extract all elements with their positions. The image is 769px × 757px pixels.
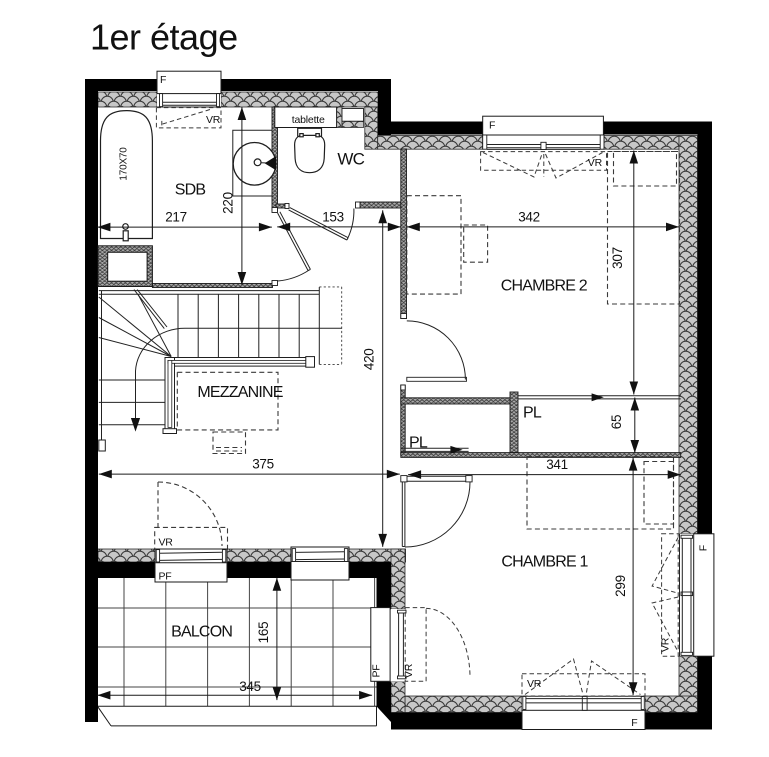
svg-text:F: F bbox=[631, 717, 637, 729]
svg-text:375: 375 bbox=[252, 457, 274, 472]
svg-text:345: 345 bbox=[239, 679, 261, 694]
svg-text:BALCON: BALCON bbox=[171, 623, 232, 640]
svg-text:65: 65 bbox=[609, 415, 624, 429]
svg-text:341: 341 bbox=[546, 457, 568, 472]
svg-text:VR: VR bbox=[660, 637, 672, 652]
svg-text:342: 342 bbox=[518, 210, 540, 225]
svg-text:F: F bbox=[698, 545, 710, 551]
svg-text:tablette: tablette bbox=[292, 114, 325, 126]
svg-text:1er étage: 1er étage bbox=[90, 17, 238, 58]
svg-text:299: 299 bbox=[613, 575, 628, 597]
svg-text:165: 165 bbox=[256, 622, 271, 644]
svg-text:PL: PL bbox=[523, 405, 542, 422]
svg-text:MEZZANINE: MEZZANINE bbox=[197, 384, 282, 401]
svg-text:SDB: SDB bbox=[175, 181, 206, 198]
svg-text:153: 153 bbox=[322, 210, 344, 225]
svg-text:PL: PL bbox=[409, 435, 428, 452]
svg-text:VR: VR bbox=[527, 678, 542, 690]
svg-text:420: 420 bbox=[362, 348, 377, 370]
svg-text:VR: VR bbox=[588, 157, 603, 169]
svg-text:VR: VR bbox=[159, 537, 174, 549]
svg-text:CHAMBRE 1: CHAMBRE 1 bbox=[501, 554, 588, 571]
svg-text:VR: VR bbox=[403, 663, 415, 678]
svg-text:F: F bbox=[160, 74, 166, 86]
svg-text:220: 220 bbox=[221, 192, 236, 214]
svg-text:217: 217 bbox=[165, 210, 187, 225]
svg-text:VR: VR bbox=[206, 114, 221, 126]
svg-text:F: F bbox=[489, 120, 495, 132]
svg-text:CHAMBRE 2: CHAMBRE 2 bbox=[501, 278, 588, 295]
svg-text:PF: PF bbox=[371, 664, 383, 677]
svg-text:PF: PF bbox=[159, 571, 172, 583]
svg-text:WC: WC bbox=[337, 149, 364, 168]
svg-text:307: 307 bbox=[610, 247, 625, 269]
svg-text:170X70: 170X70 bbox=[119, 147, 130, 181]
